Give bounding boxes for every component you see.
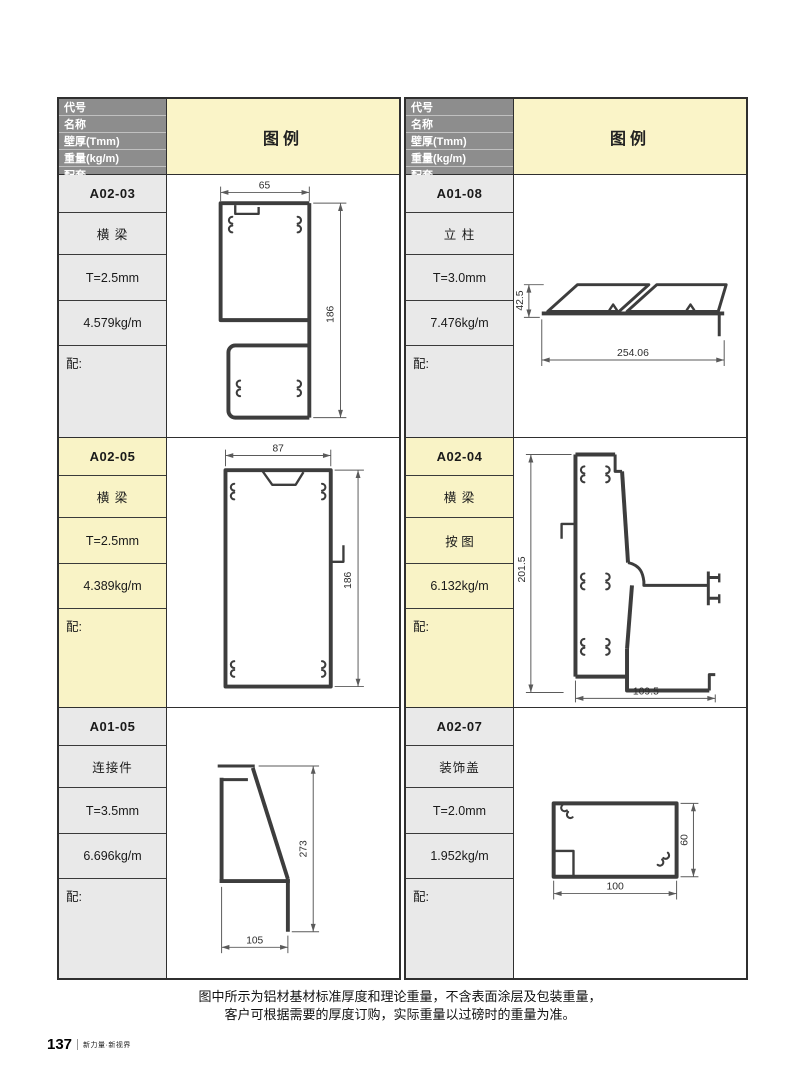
dim-width-label: 87	[272, 444, 284, 455]
dim-width-label: 109.5	[633, 686, 659, 697]
profile-drawing-a01-05: 105 273	[167, 708, 399, 978]
entry-name: 横 梁	[59, 213, 166, 255]
entry-match: 配:	[406, 609, 513, 707]
dim-height-label: 186	[343, 571, 354, 588]
entry-name: 横 梁	[59, 476, 166, 518]
header-field-labels: 代号 名称 壁厚(Tmm) 重量(kg/m) 配套	[59, 99, 167, 174]
entry-thickness: T=2.0mm	[406, 788, 513, 834]
entry-a02-04: A02-04 横 梁 按 图 6.132kg/m 配:	[406, 438, 746, 708]
header-field-name: 名称	[59, 116, 166, 133]
entry-labels: A02-03 横 梁 T=2.5mm 4.579kg/m 配:	[59, 175, 167, 437]
entry-thickness: 按 图	[406, 518, 513, 564]
entry-match: 配:	[59, 609, 166, 707]
profile-drawing-a02-03: 65 186	[167, 175, 399, 437]
entry-thickness: T=3.0mm	[406, 255, 513, 301]
dim-width-label: 105	[246, 935, 263, 946]
entry-labels: A01-08 立 柱 T=3.0mm 7.476kg/m 配:	[406, 175, 514, 437]
page-number: 137	[47, 1036, 72, 1053]
header-legend-label: 图例	[514, 99, 746, 174]
footer-divider	[77, 1039, 78, 1050]
entry-match: 配:	[406, 879, 513, 978]
profile-drawing-a02-07: 100 60	[514, 708, 746, 978]
footer-note-line1: 图中所示为铝材基材标准厚度和理论重量，不含表面涂层及包装重量，	[0, 988, 800, 1006]
entry-labels: A02-05 横 梁 T=2.5mm 4.389kg/m 配:	[59, 438, 167, 707]
entry-a02-03: A02-03 横 梁 T=2.5mm 4.579kg/m 配:	[59, 175, 399, 438]
footer-note: 图中所示为铝材基材标准厚度和理论重量，不含表面涂层及包装重量， 客户可根据需要的…	[0, 988, 800, 1024]
table-header-right: 代号 名称 壁厚(Tmm) 重量(kg/m) 配套 图例	[406, 99, 746, 175]
entry-code: A02-07	[406, 708, 513, 746]
header-legend-label: 图例	[167, 99, 399, 174]
dim-width-label: 254.06	[617, 348, 649, 359]
dim-height-label: 273	[298, 840, 309, 857]
footer-note-line2: 客户可根据需要的厚度订购，实际重量以过磅时的重量为准。	[0, 1006, 800, 1024]
entry-weight: 4.579kg/m	[59, 301, 166, 346]
catalog-page: 代号 名称 壁厚(Tmm) 重量(kg/m) 配套 图例 A02-03 横 梁 …	[0, 0, 800, 1085]
entry-code: A02-05	[59, 438, 166, 476]
entry-code: A01-08	[406, 175, 513, 213]
entry-weight: 7.476kg/m	[406, 301, 513, 346]
profile-drawing-a02-05: 87 186	[167, 438, 399, 707]
entry-labels: A01-05 连接件 T=3.5mm 6.696kg/m 配:	[59, 708, 167, 978]
entry-labels: A02-04 横 梁 按 图 6.132kg/m 配:	[406, 438, 514, 707]
header-field-code: 代号	[406, 99, 513, 116]
entry-match: 配:	[59, 346, 166, 437]
header-field-thickness: 壁厚(Tmm)	[59, 133, 166, 150]
entry-a02-05: A02-05 横 梁 T=2.5mm 4.389kg/m 配:	[59, 438, 399, 708]
entry-labels: A02-07 装饰盖 T=2.0mm 1.952kg/m 配:	[406, 708, 514, 978]
page-footer: 137 新力量·新视界	[47, 1036, 131, 1053]
entry-weight: 1.952kg/m	[406, 834, 513, 879]
profile-drawing-a02-04: 201.5 109.5	[514, 438, 746, 707]
entry-thickness: T=2.5mm	[59, 255, 166, 301]
entry-code: A01-05	[59, 708, 166, 746]
profile-drawing-a01-08: 42.5 254.06	[514, 175, 746, 437]
dim-height-label: 42.5	[515, 290, 526, 310]
entry-code: A02-03	[59, 175, 166, 213]
entry-a01-08: A01-08 立 柱 T=3.0mm 7.476kg/m 配:	[406, 175, 746, 438]
header-field-name: 名称	[406, 116, 513, 133]
header-field-thickness: 壁厚(Tmm)	[406, 133, 513, 150]
entry-name: 装饰盖	[406, 746, 513, 788]
header-field-labels: 代号 名称 壁厚(Tmm) 重量(kg/m) 配套	[406, 99, 514, 174]
entry-a01-05: A01-05 连接件 T=3.5mm 6.696kg/m 配:	[59, 708, 399, 978]
spec-table-left: 代号 名称 壁厚(Tmm) 重量(kg/m) 配套 图例 A02-03 横 梁 …	[57, 97, 401, 980]
table-header-left: 代号 名称 壁厚(Tmm) 重量(kg/m) 配套 图例	[59, 99, 399, 175]
entry-match: 配:	[406, 346, 513, 437]
header-field-weight: 重量(kg/m)	[406, 150, 513, 167]
dim-height-label: 186	[326, 305, 337, 322]
entry-name: 横 梁	[406, 476, 513, 518]
footer-brand-slogan: 新力量·新视界	[83, 1040, 131, 1050]
dim-height-label: 201.5	[517, 556, 528, 582]
entry-weight: 6.696kg/m	[59, 834, 166, 879]
spec-tables-wrapper: 代号 名称 壁厚(Tmm) 重量(kg/m) 配套 图例 A02-03 横 梁 …	[57, 97, 748, 980]
entry-weight: 4.389kg/m	[59, 564, 166, 609]
entry-a02-07: A02-07 装饰盖 T=2.0mm 1.952kg/m 配:	[406, 708, 746, 978]
entry-match: 配:	[59, 879, 166, 978]
entry-thickness: T=3.5mm	[59, 788, 166, 834]
dim-width-label: 65	[259, 181, 271, 192]
entry-code: A02-04	[406, 438, 513, 476]
entry-weight: 6.132kg/m	[406, 564, 513, 609]
header-field-code: 代号	[59, 99, 166, 116]
entry-name: 立 柱	[406, 213, 513, 255]
dim-width-label: 100	[606, 882, 624, 893]
spec-table-right: 代号 名称 壁厚(Tmm) 重量(kg/m) 配套 图例 A01-08 立 柱 …	[404, 97, 748, 980]
entry-name: 连接件	[59, 746, 166, 788]
dim-height-label: 60	[680, 834, 691, 846]
entry-thickness: T=2.5mm	[59, 518, 166, 564]
header-field-weight: 重量(kg/m)	[59, 150, 166, 167]
